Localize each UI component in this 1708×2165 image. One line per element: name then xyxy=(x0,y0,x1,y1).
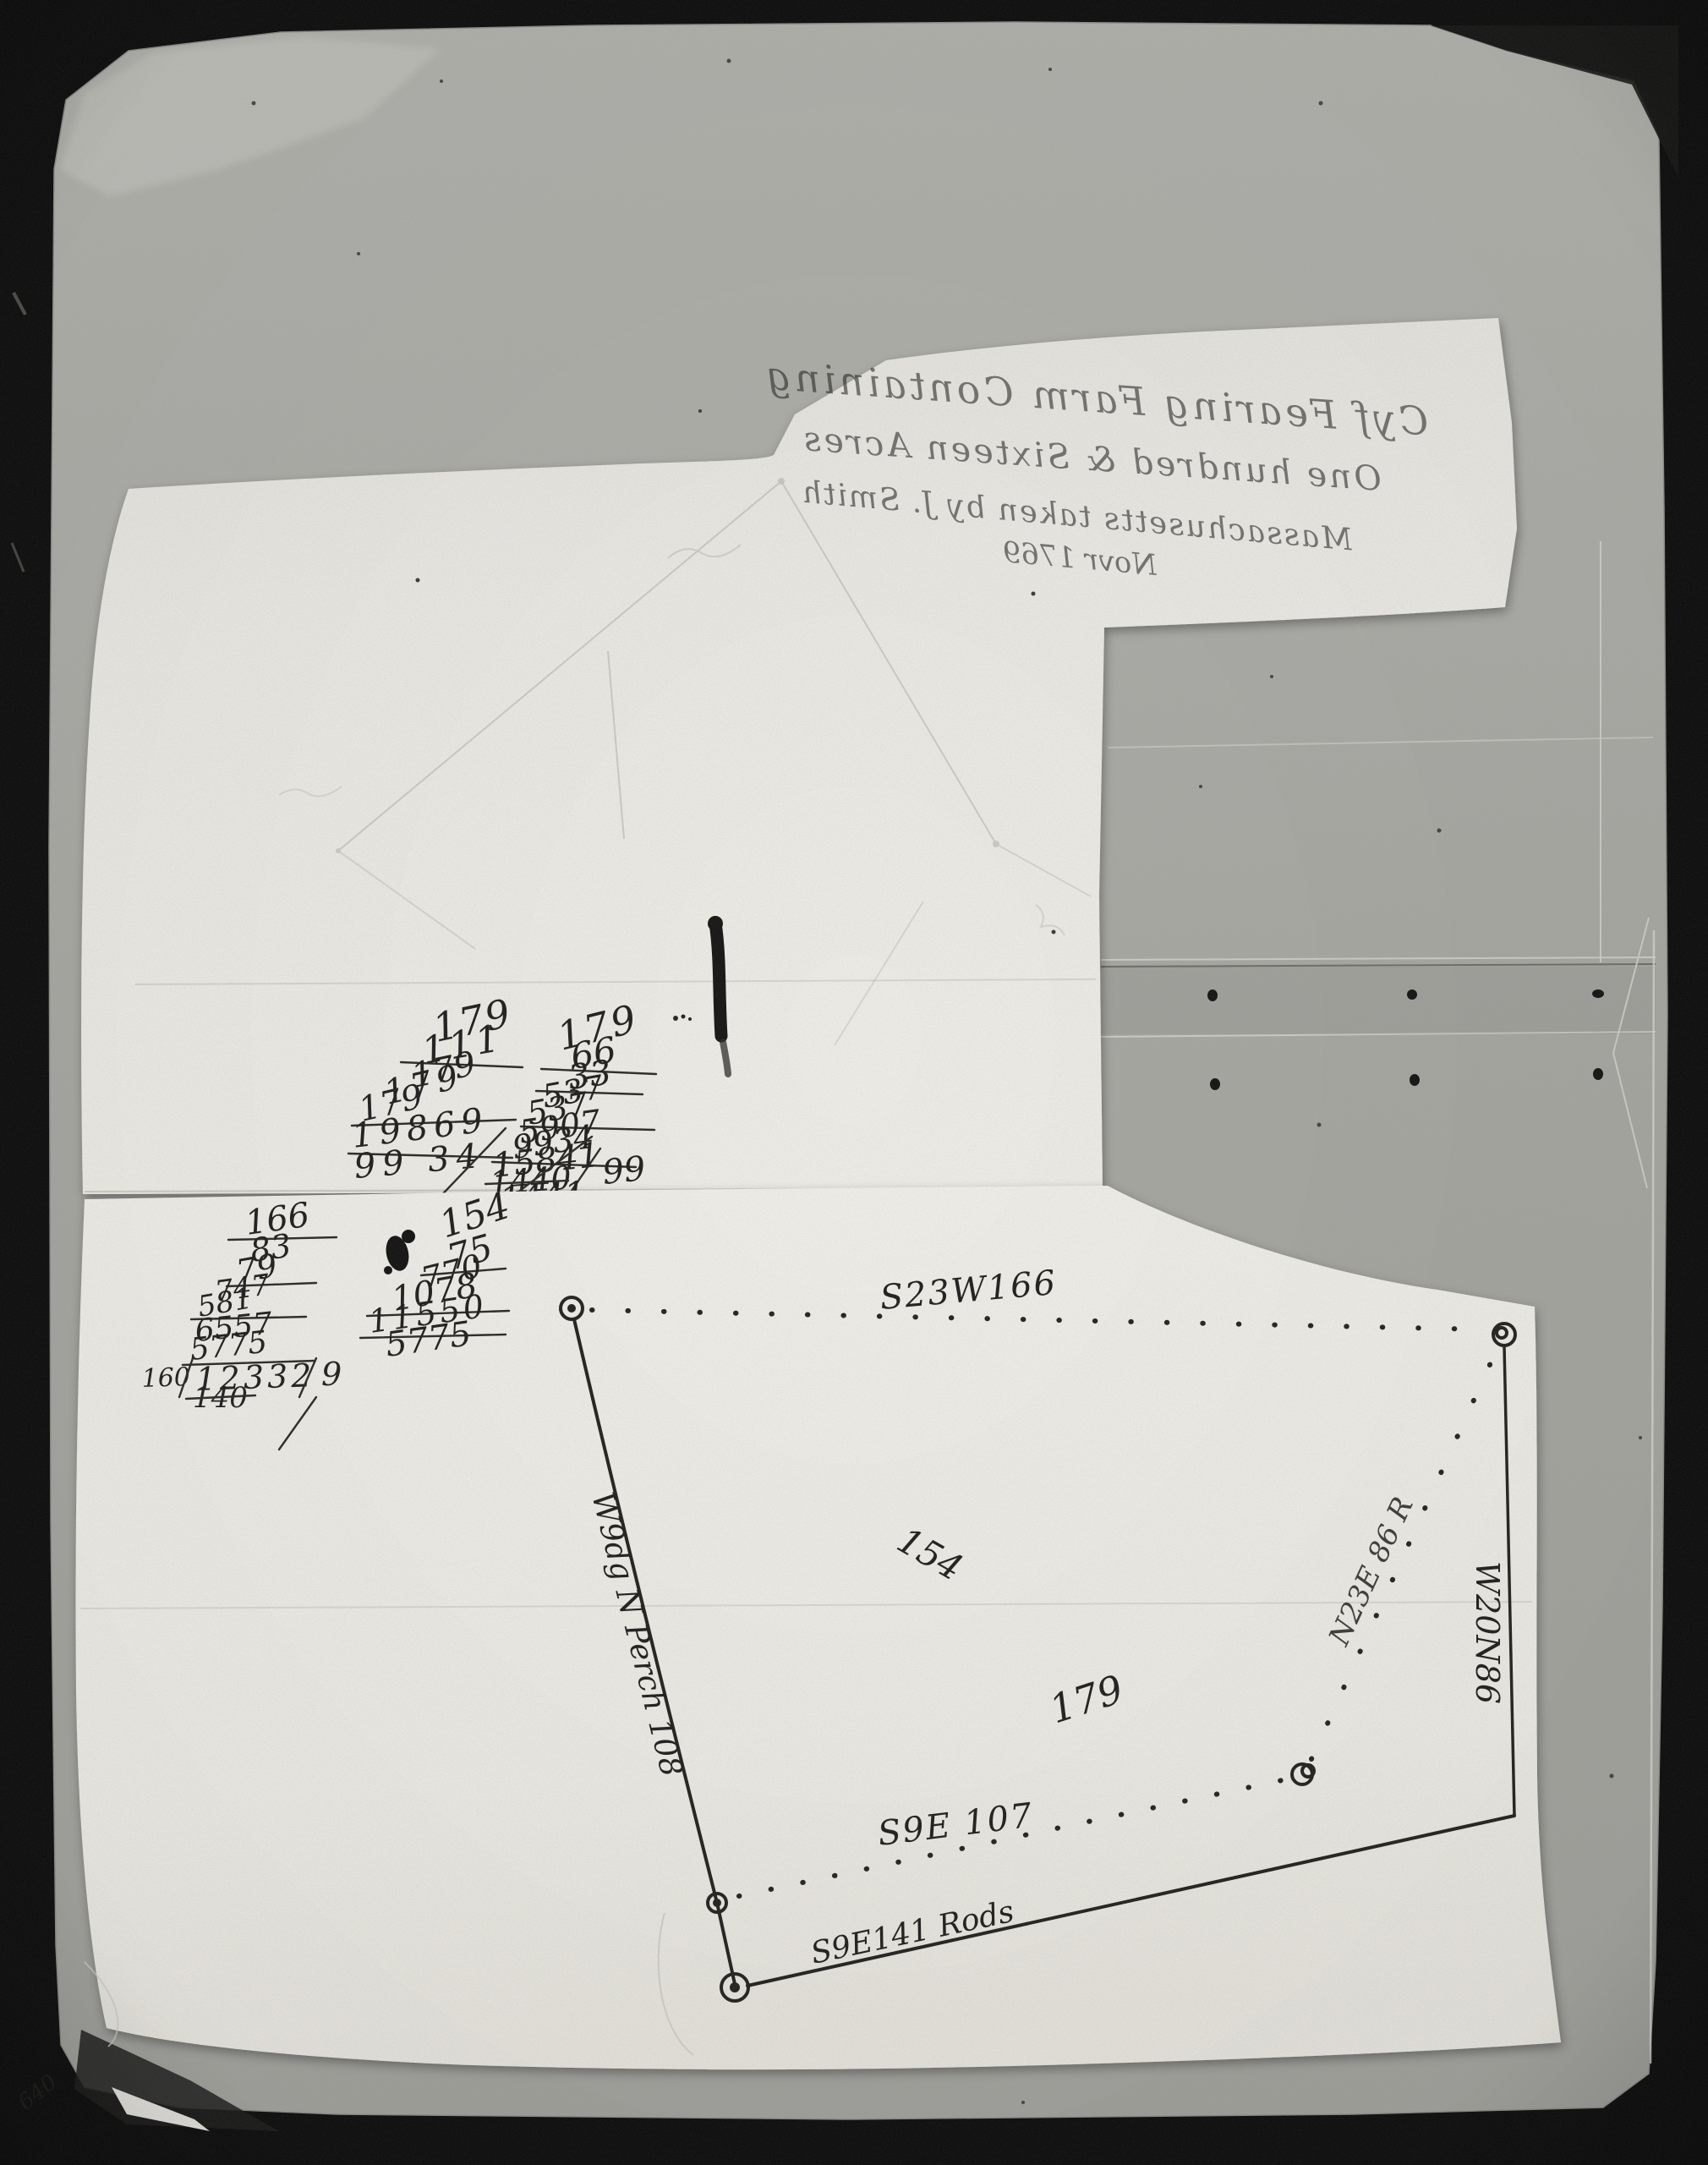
scanned-survey-document: Cyf Fearing Farm Containing One hundred … xyxy=(0,0,1708,2165)
vignette-overlay xyxy=(0,0,1708,2165)
